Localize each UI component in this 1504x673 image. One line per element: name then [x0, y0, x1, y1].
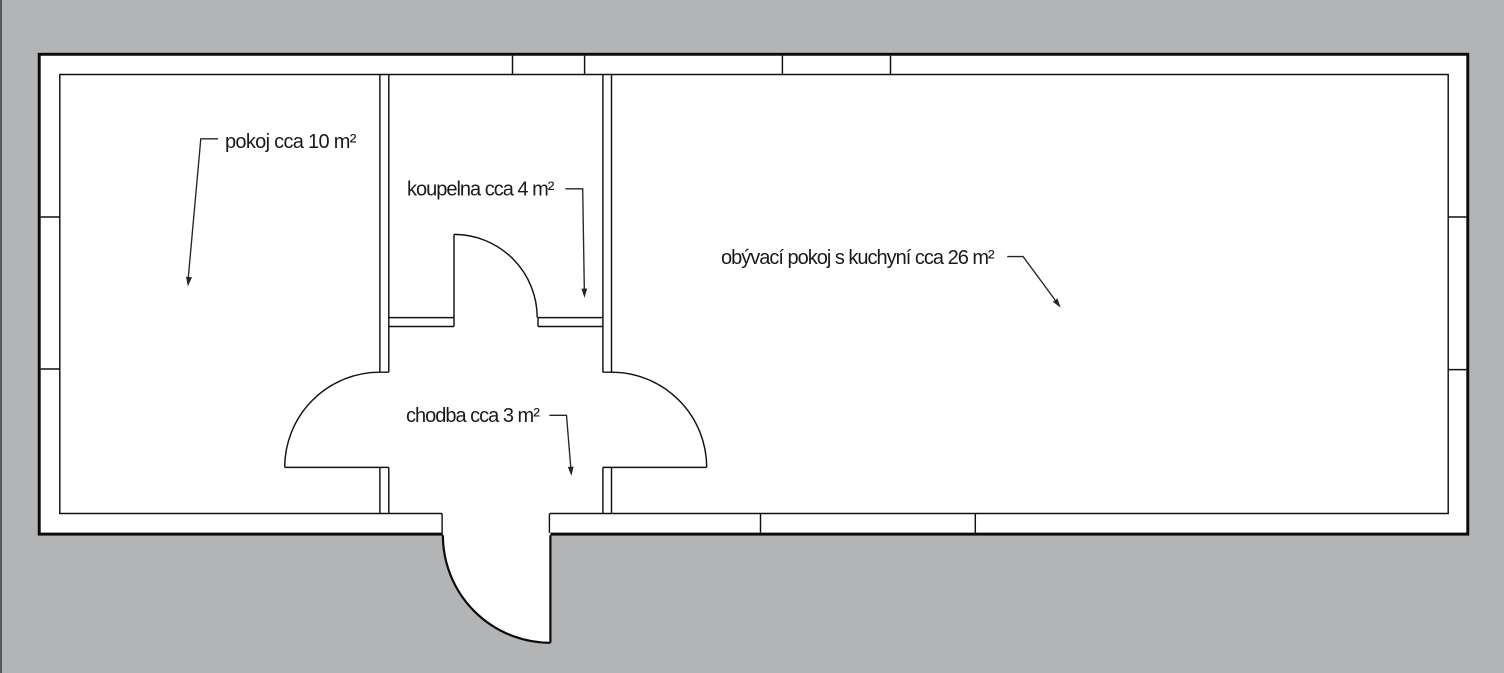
svg-text:chodba cca 3 m²: chodba cca 3 m²: [406, 405, 540, 427]
svg-text:obývací pokoj s kuchyní cca 26: obývací pokoj s kuchyní cca 26 m²: [721, 247, 995, 269]
svg-text:pokoj cca 10 m²: pokoj cca 10 m²: [225, 131, 357, 153]
svg-text:koupelna cca 4 m²: koupelna cca 4 m²: [407, 179, 555, 201]
